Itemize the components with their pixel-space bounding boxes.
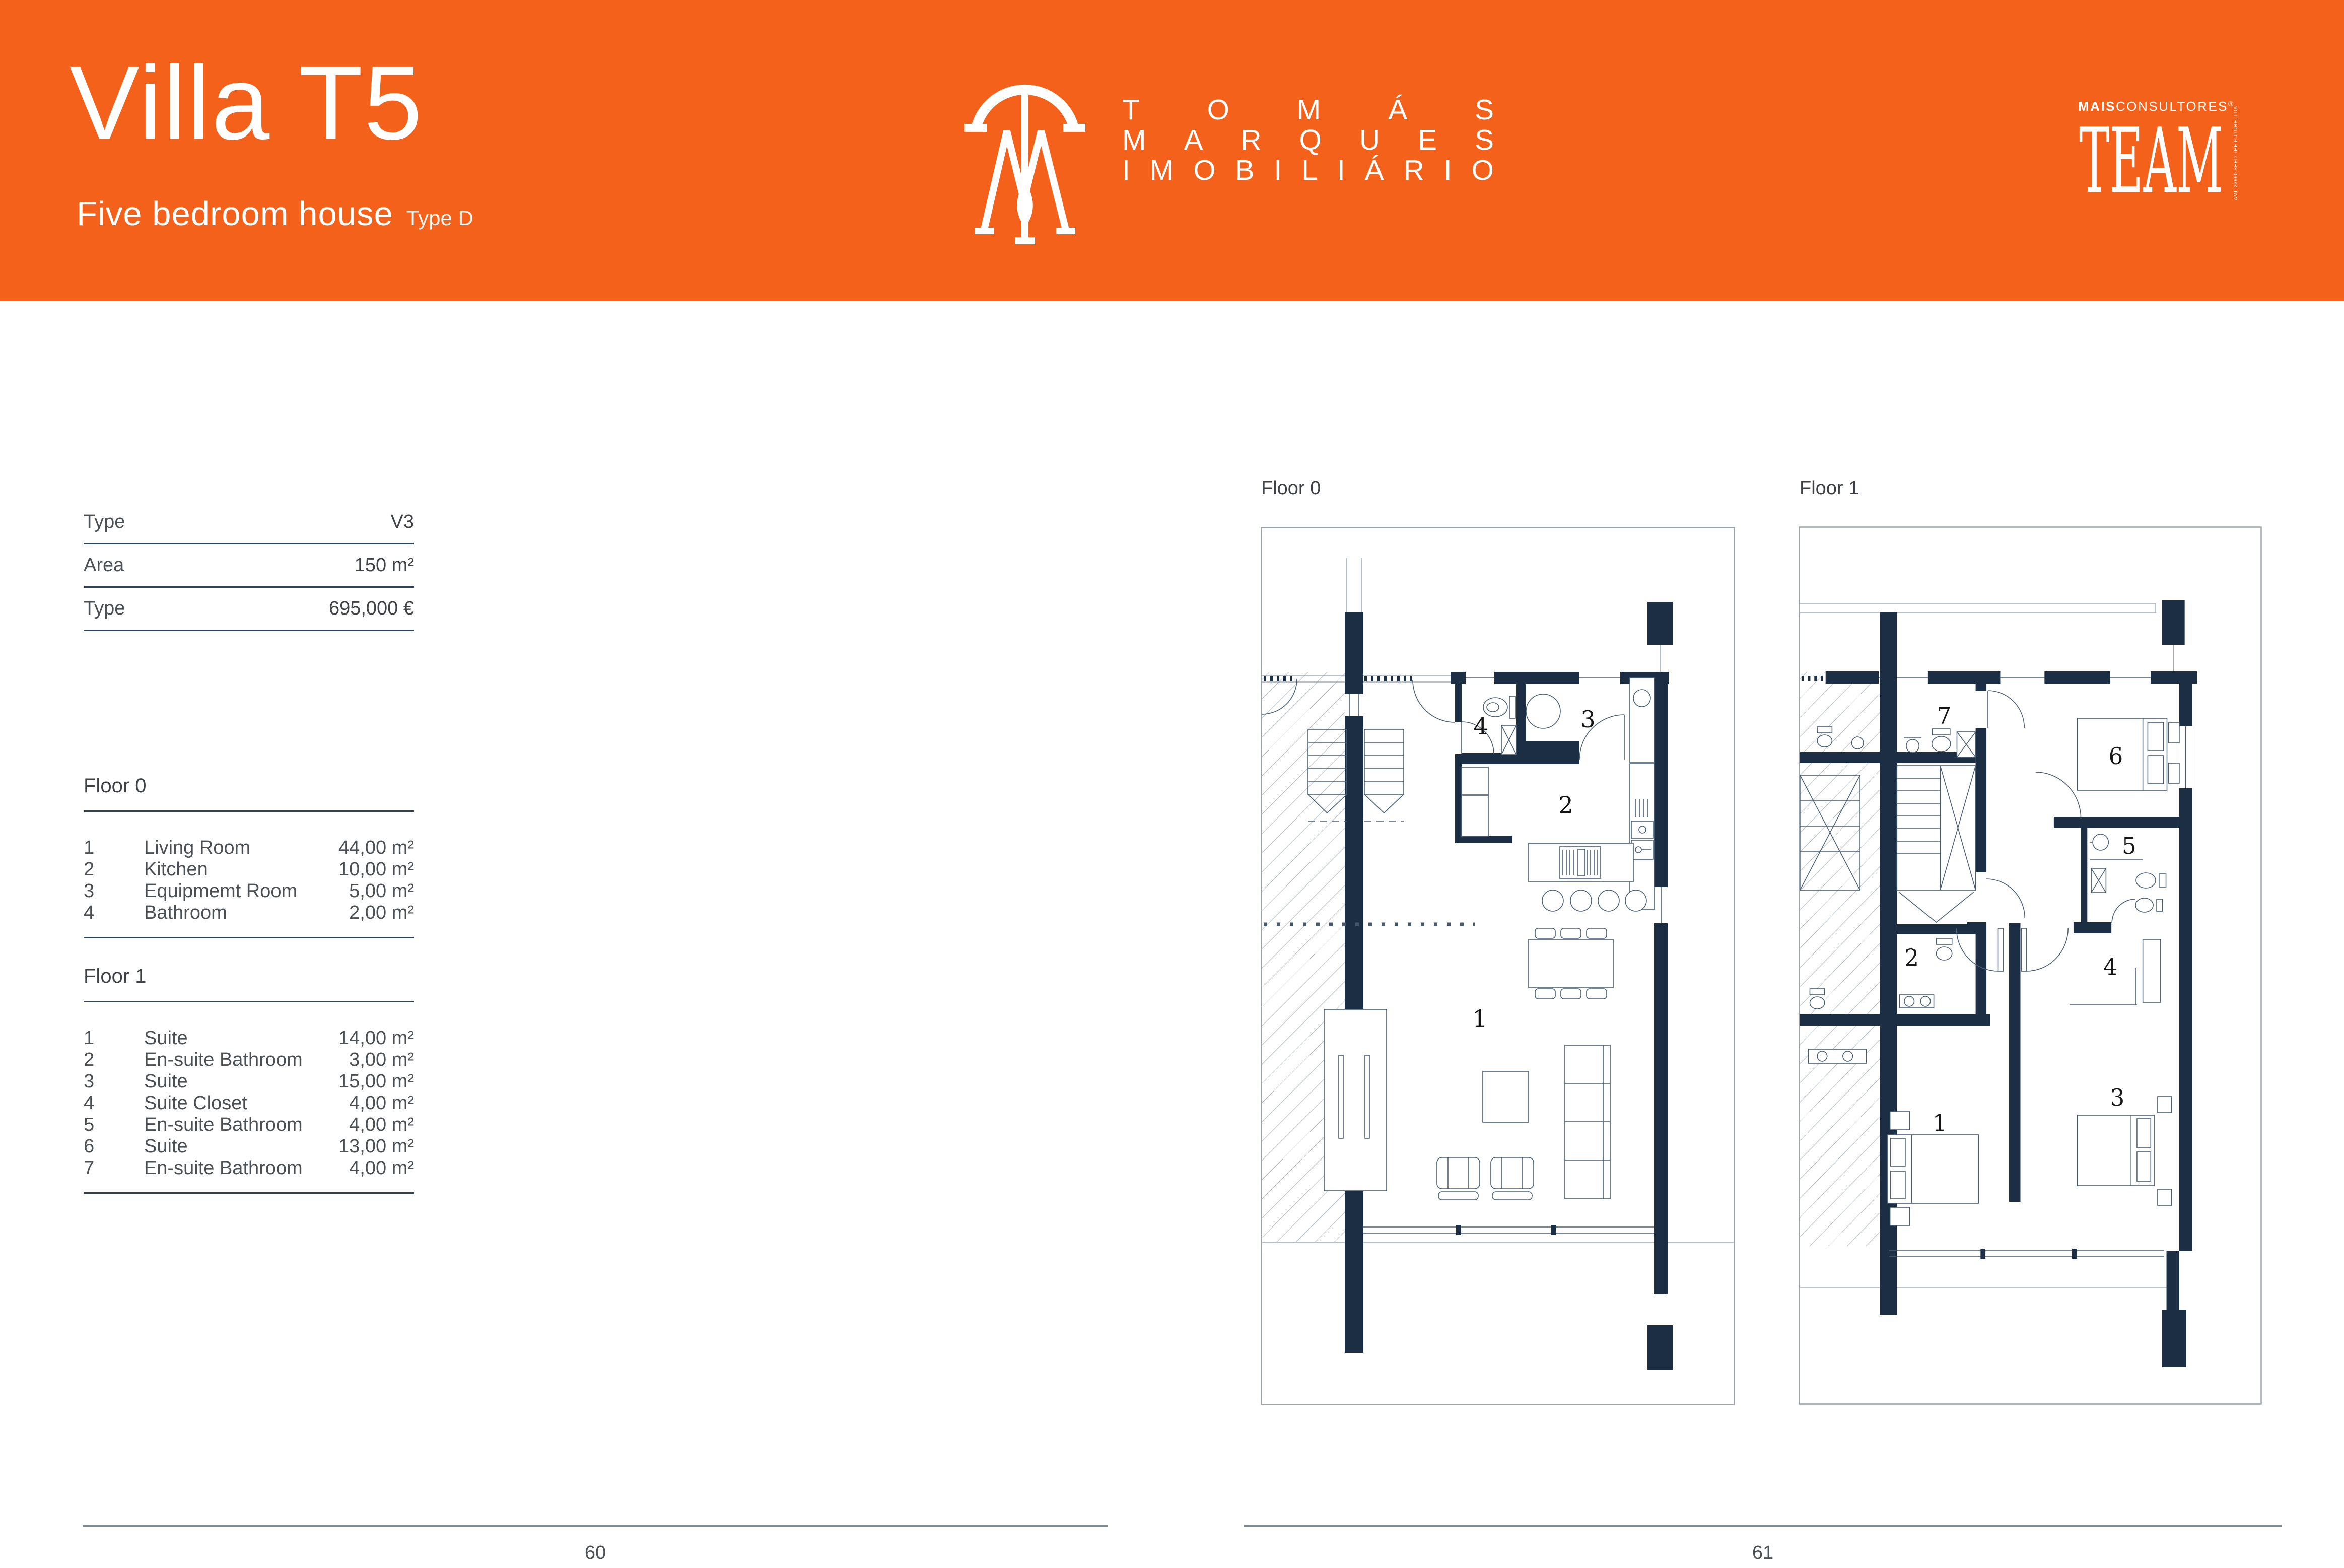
room-row: 2 Kitchen 10,00 m² [84,859,414,880]
team-side-text: AMI: 23990 SEED THE FUTURE, LDA. [2233,125,2239,200]
page-subtitle: Five bedroom house [77,194,393,233]
page-title: Villa T5 [70,48,423,158]
room-number: 7 [84,1157,144,1179]
room-number: 3 [84,1071,144,1093]
room-name: Suite [144,1136,338,1157]
plan-room-label: 2 [1558,791,1573,819]
room-row: 4 Bathroom 2,00 m² [84,902,414,924]
room-area: 44,00 m² [338,837,414,859]
brand-line-3: IMOBILIÁRIO [1122,155,1494,185]
page-number-right: 61 [1738,1542,1788,1564]
floor1-list-title: Floor 1 [84,965,414,987]
plan-room-label: 1 [1472,1005,1487,1032]
room-name: En-suite Bathroom [144,1157,349,1179]
plan-room-label: 6 [2109,743,2123,770]
header-band: Villa T5 Five bedroom house Type D TOMÁS… [0,0,2344,301]
floor1-plan-drawing: 1 2 3 4 5 6 7 [1799,526,2262,1405]
room-row: 3 Equipmemt Room 5,00 m² [84,880,414,902]
floor0-list-title: Floor 0 [84,775,414,797]
subtitle-row: Five bedroom house Type D [77,194,473,233]
room-area: 14,00 m² [338,1028,414,1049]
plan-room-label: 5 [2122,833,2136,860]
room-area: 3,00 m² [349,1049,414,1071]
room-area: 4,00 m² [349,1157,414,1179]
room-row: 4 Suite Closet 4,00 m² [84,1093,414,1114]
room-number: 1 [84,837,144,859]
room-name: Suite [144,1028,338,1049]
spec-label: Type [84,511,125,533]
room-name: En-suite Bathroom [144,1114,349,1136]
room-area: 15,00 m² [338,1071,414,1093]
page-number-left: 60 [570,1542,621,1564]
room-name: Equipmemt Room [144,880,349,902]
floor1-plan-title: Floor 1 [1800,478,1859,499]
divider [84,937,414,938]
room-number: 3 [84,880,144,902]
team-logo: MAISCONSULTORES® TEAM [2078,99,2249,198]
plan-room-label: 7 [1937,703,1952,730]
floor1-room-list: Floor 1 1 Suite 14,00 m² 2 En-suite Bath… [84,965,414,1194]
team-wordmark: TEAM [2078,121,2225,198]
room-area: 10,00 m² [338,859,414,880]
room-name: Kitchen [144,859,338,880]
team-logo-topline: MAISCONSULTORES® [2078,99,2249,114]
floor0-plan-title: Floor 0 [1261,478,1321,499]
divider [84,1192,414,1194]
floor0-rooms: 1 Living Room 44,00 m² 2 Kitchen 10,00 m… [84,837,414,924]
room-name: Living Room [144,837,338,859]
room-name: Bathroom [144,902,349,924]
spec-value: 150 m² [355,555,414,576]
divider [84,1001,414,1002]
tm-monogram-icon [954,71,1095,244]
plan-room-label: 2 [1904,944,1919,972]
room-name: En-suite Bathroom [144,1049,349,1071]
type-tag: Type D [406,206,473,230]
spec-row-type: Type V3 [84,501,414,544]
floor0-room-list: Floor 0 1 Living Room 44,00 m² 2 Kitchen… [84,775,414,938]
floor0-plan-drawing: 1 2 3 4 [1261,527,1735,1405]
plan-room-label: 4 [2103,953,2118,981]
footer-rule-left [83,1525,1108,1527]
plan-room-label: 3 [1580,706,1595,733]
room-row: 3 Suite 15,00 m² [84,1071,414,1093]
room-row: 2 En-suite Bathroom 3,00 m² [84,1049,414,1071]
divider [84,810,414,812]
plan-room-label: 1 [1933,1110,1947,1137]
room-number: 2 [84,859,144,880]
room-row: 5 En-suite Bathroom 4,00 m² [84,1114,414,1136]
team-word-text: TEAM [2079,121,2223,198]
room-row: 1 Suite 14,00 m² [84,1028,414,1049]
room-name: Suite Closet [144,1093,349,1114]
room-number: 4 [84,902,144,924]
spec-label: Area [84,555,124,576]
brand-wordmark: TOMÁS MARQUES IMOBILIÁRIO [1122,95,1494,185]
team-top-light: CONSULTORES [2116,99,2228,114]
room-number: 2 [84,1049,144,1071]
spec-row-price: Type 695,000 € [84,588,414,631]
room-number: 5 [84,1114,144,1136]
room-name: Suite [144,1071,338,1093]
room-row: 6 Suite 13,00 m² [84,1136,414,1157]
footer-rule-right [1244,1525,2282,1527]
spec-label: Type [84,598,125,620]
room-area: 2,00 m² [349,902,414,924]
room-number: 1 [84,1028,144,1049]
spec-value: 695,000 € [329,598,414,620]
suite6-furniture [2078,718,2179,790]
room-area: 4,00 m² [349,1114,414,1136]
brand-line-2: MARQUES [1122,125,1494,155]
room-number: 6 [84,1136,144,1157]
spec-row-area: Area 150 m² [84,544,414,588]
room-number: 4 [84,1093,144,1114]
room-row: 7 En-suite Bathroom 4,00 m² [84,1157,414,1179]
plan-room-label: 4 [1473,713,1488,740]
spec-table: Type V3 Area 150 m² Type 695,000 € [84,501,414,631]
plan-room-label: 3 [2110,1084,2125,1112]
brand-line-1: TOMÁS [1122,95,1494,125]
room-area: 13,00 m² [338,1136,414,1157]
floor1-rooms: 1 Suite 14,00 m² 2 En-suite Bathroom 3,0… [84,1028,414,1179]
spec-value: V3 [391,511,414,533]
team-top-bold: MAIS [2078,99,2116,114]
room-area: 5,00 m² [349,880,414,902]
room-row: 1 Living Room 44,00 m² [84,837,414,859]
room-area: 4,00 m² [349,1093,414,1114]
